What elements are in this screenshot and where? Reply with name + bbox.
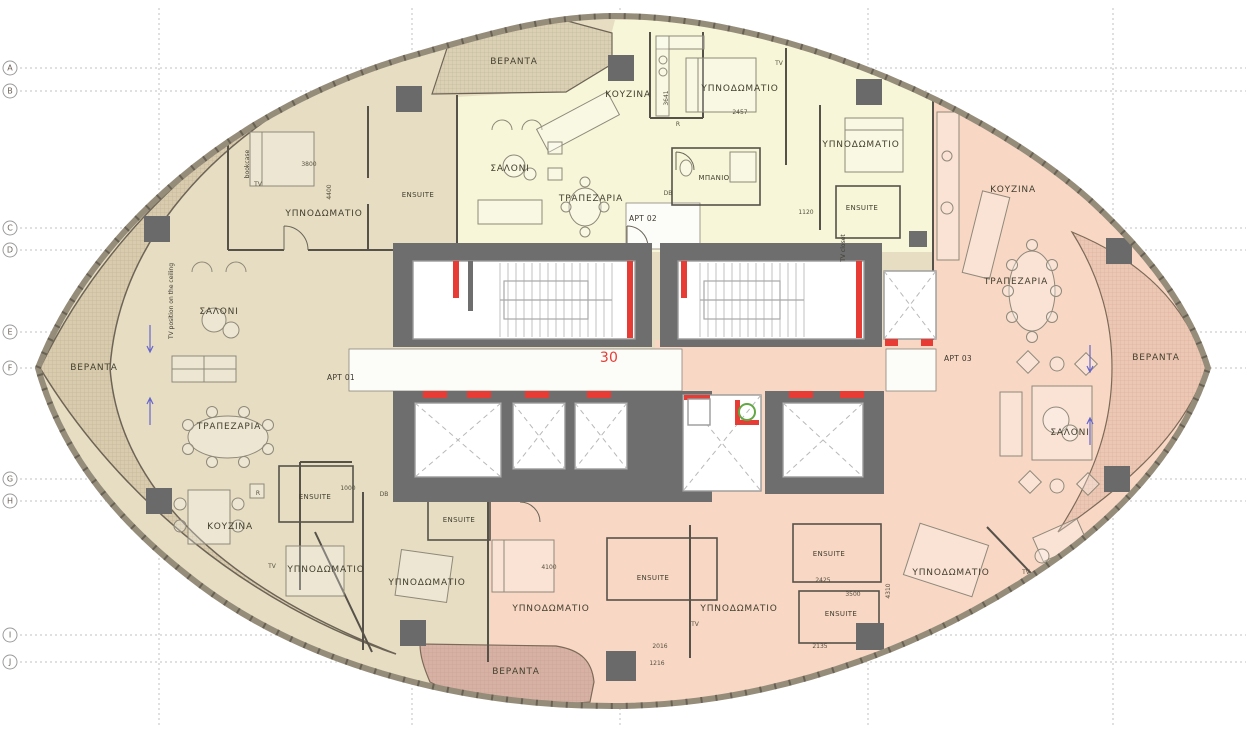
column (1104, 466, 1130, 492)
room-label: ΜΠΑΝΙΟ (698, 174, 729, 182)
dimension-label: DB (380, 491, 389, 498)
room-label: ΥΠΝΟΔΩΜΑΤΙΟ (387, 578, 465, 588)
grid-letter-G: G (7, 475, 13, 484)
floor-number: 30 (600, 350, 618, 366)
dimension-label: 3500 (845, 591, 860, 598)
room-label: ENSUITE (299, 493, 331, 501)
fire-door-jamb (453, 261, 459, 298)
kitchen-counter (937, 112, 959, 260)
room-label: ΥΠΝΟΔΩΜΑΤΙΟ (911, 568, 989, 578)
room-label: ΚΟΥΖΙΝΑ (207, 522, 253, 532)
grid-letter-H: H (7, 497, 13, 506)
elevator-door-marker (840, 391, 864, 398)
elevator-door-marker (885, 339, 898, 346)
room-label: ΒΕΡΑΝΤΑ (490, 57, 538, 67)
room-label: ΒΕΡΑΝΤΑ (70, 363, 118, 373)
column (144, 216, 170, 242)
column (606, 651, 636, 681)
room-label: ENSUITE (825, 610, 857, 618)
room-label: ΒΕΡΑΝΤΑ (492, 667, 540, 677)
room-label: ΤΡΑΠΕΖΑΡΙΑ (196, 422, 261, 432)
elevator-door-marker (525, 391, 549, 398)
room-label: ΥΠΝΟΔΩΜΑΤΙΟ (284, 209, 362, 219)
grid-letter-J: J (8, 658, 11, 667)
dimension-label: 4310 (885, 583, 892, 598)
elevator-door-marker (467, 391, 491, 398)
room-label: ENSUITE (637, 574, 669, 582)
bed (250, 132, 314, 186)
room-label: ENSUITE (402, 191, 434, 199)
service-fixture (688, 399, 710, 425)
room-label: ΥΠΝΟΔΩΜΑΤΙΟ (511, 604, 589, 614)
grid-letter-A: A (7, 64, 13, 73)
duct-box (909, 231, 927, 247)
column (396, 86, 422, 112)
dimension-label: 1216 (649, 660, 664, 667)
chair (548, 168, 562, 180)
apartment-label: APT 01 (327, 373, 355, 382)
elevator-door-marker (789, 391, 813, 398)
sofa (478, 200, 542, 224)
room-label: ΥΠΝΟΔΩΜΑΤΙΟ (700, 84, 778, 94)
elevator-door-marker (587, 391, 611, 398)
room-label: ΤΡΑΠΕΖΑΡΙΑ (983, 277, 1048, 287)
room-label: ΥΠΝΟΔΩΜΑΤΙΟ (286, 565, 364, 575)
grid-letter-B: B (7, 87, 13, 96)
dimension-label: 2135 (812, 643, 827, 650)
desk (84, 158, 136, 203)
apartment-label: APT 02 (629, 214, 657, 223)
dimension-label: R (256, 490, 260, 497)
shower (730, 152, 756, 182)
fire-door-jamb (681, 261, 687, 298)
corridor-apt2-vestibule (626, 203, 700, 249)
desk-chair (1035, 549, 1049, 563)
column (856, 79, 882, 105)
dimension-label: 1000 (340, 485, 355, 492)
dimension-label: 4100 (541, 564, 556, 571)
dimension-label: 2016 (652, 643, 667, 650)
room-label: ENSUITE (813, 550, 845, 558)
fire-door-jamb (856, 261, 862, 338)
pouf (1050, 479, 1064, 493)
dimension-label: 1120 (798, 209, 813, 216)
annotation-note: TV closet (840, 234, 847, 263)
room-label: ΚΟΥΖΙΝΑ (990, 185, 1036, 195)
side-table (223, 322, 239, 338)
elevator-door-marker (921, 339, 933, 346)
apartment-label: APT 03 (944, 354, 972, 363)
elevator-door-marker (423, 391, 447, 398)
sofa (1000, 392, 1022, 456)
kitchen-table (188, 490, 230, 544)
column (146, 488, 172, 514)
corridor-apt3-lobby (886, 349, 936, 391)
room-label: ΣΑΛΟΝΙ (199, 307, 238, 317)
chair (548, 142, 562, 154)
room-label: ENSUITE (846, 204, 878, 212)
room-label: ΥΠΝΟΔΩΜΑΤΙΟ (699, 604, 777, 614)
room-label: ΣΑΛΟΝΙ (490, 164, 529, 174)
dimension-label: 2425 (815, 577, 830, 584)
tv-label: TV (1021, 569, 1031, 576)
tv-label: TV (690, 621, 700, 628)
bed (395, 550, 453, 603)
toilet (680, 160, 692, 176)
column (400, 620, 426, 646)
dimension-label: DB (664, 190, 673, 197)
annotation-note: bookcase (244, 149, 251, 178)
room-label: ΤΡΑΠΕΖΑΡΙΑ (558, 194, 623, 204)
grid-letter-C: C (7, 224, 13, 233)
dimension-label: 4400 (326, 184, 333, 199)
corridor-main (349, 349, 682, 391)
tv-label: TV (267, 563, 277, 570)
pouf (1050, 357, 1064, 371)
dimension-label: R (676, 121, 680, 128)
stair-vestibule-wall (468, 261, 473, 311)
grid-letter-F: F (8, 364, 13, 373)
room-label: ΚΟΥΖΙΝΑ (605, 90, 651, 100)
grid-letter-E: E (7, 328, 12, 337)
column (856, 623, 884, 650)
dimension-label: 2457 (732, 109, 747, 116)
dimension-label: 3800 (301, 161, 316, 168)
room-label: ΥΠΝΟΔΩΜΑΤΙΟ (821, 140, 899, 150)
desk-chair (127, 193, 141, 207)
fire-door-jamb (627, 261, 633, 338)
room-label: ΣΑΛΟΝΙ (1050, 428, 1089, 438)
annotation-note: TV position on the ceiling (168, 263, 175, 340)
room-label: ΒΕΡΑΝΤΑ (1132, 353, 1180, 363)
floor-plan-canvas: ABCDEFGHIJ (0, 0, 1248, 732)
building (38, 10, 1248, 722)
tv-label: TV (774, 60, 784, 67)
column (608, 55, 634, 81)
tv-label: TV (253, 181, 263, 188)
dimension-label: 3641 (663, 90, 670, 105)
room-label: ENSUITE (443, 516, 475, 524)
grid-letter-D: D (7, 246, 13, 255)
grid-letter-I: I (9, 631, 11, 640)
